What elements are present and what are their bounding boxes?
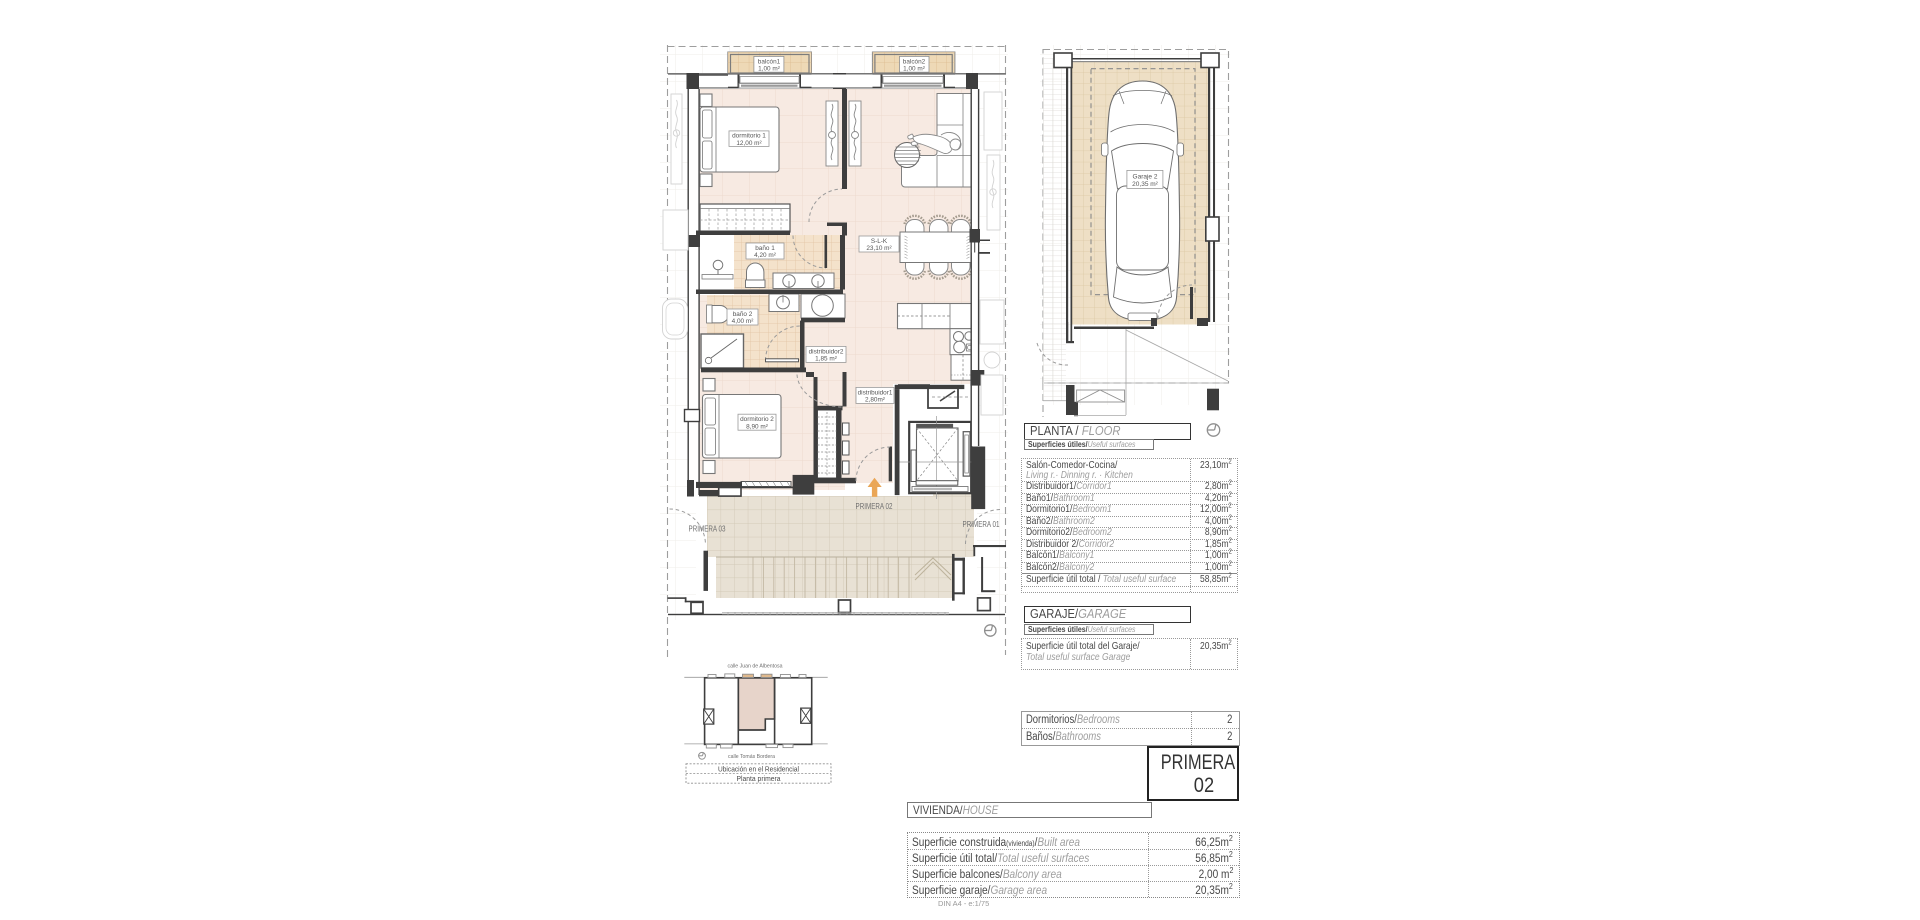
svg-text:baño 2: baño 2 (733, 311, 753, 318)
svg-text:Garaje 2: Garaje 2 (1133, 173, 1158, 180)
svg-text:S-L-K: S-L-K (871, 238, 888, 245)
svg-text:8,90 m²: 8,90 m² (746, 423, 768, 430)
svg-text:20,35 m²: 20,35 m² (1132, 181, 1158, 188)
svg-text:Planta primera: Planta primera (737, 774, 782, 783)
svg-text:balcón2: balcón2 (903, 58, 926, 65)
svg-text:baño 1: baño 1 (755, 245, 775, 252)
svg-text:distribuidor1: distribuidor1 (858, 389, 893, 396)
svg-text:4,00 m²: 4,00 m² (732, 318, 754, 325)
svg-text:1,85 m²: 1,85 m² (815, 356, 837, 363)
svg-text:1,00 m²: 1,00 m² (758, 66, 780, 73)
svg-text:balcón1: balcón1 (758, 58, 781, 65)
svg-text:Ubicación en el Residencial: Ubicación en el Residencial (718, 764, 799, 773)
svg-text:PRIMERA 01: PRIMERA 01 (963, 520, 1000, 529)
svg-text:23,10 m²: 23,10 m² (866, 245, 891, 252)
svg-text:dormitorio 1: dormitorio 1 (732, 133, 766, 140)
svg-text:4,20 m²: 4,20 m² (754, 252, 776, 259)
svg-text:calle Juan de Albentosa: calle Juan de Albentosa (728, 664, 784, 670)
svg-text:PRIMERA 03: PRIMERA 03 (689, 525, 726, 534)
svg-text:dormitorio 2: dormitorio 2 (740, 416, 774, 423)
svg-text:1,00 m²: 1,00 m² (903, 66, 925, 73)
svg-text:calle Tomás Bordera: calle Tomás Bordera (728, 754, 776, 760)
svg-text:PRIMERA 02: PRIMERA 02 (856, 502, 893, 511)
svg-text:distribuidor2: distribuidor2 (809, 348, 844, 355)
svg-text:12,00 m²: 12,00 m² (736, 140, 761, 147)
svg-text:2,80m²: 2,80m² (865, 397, 885, 404)
